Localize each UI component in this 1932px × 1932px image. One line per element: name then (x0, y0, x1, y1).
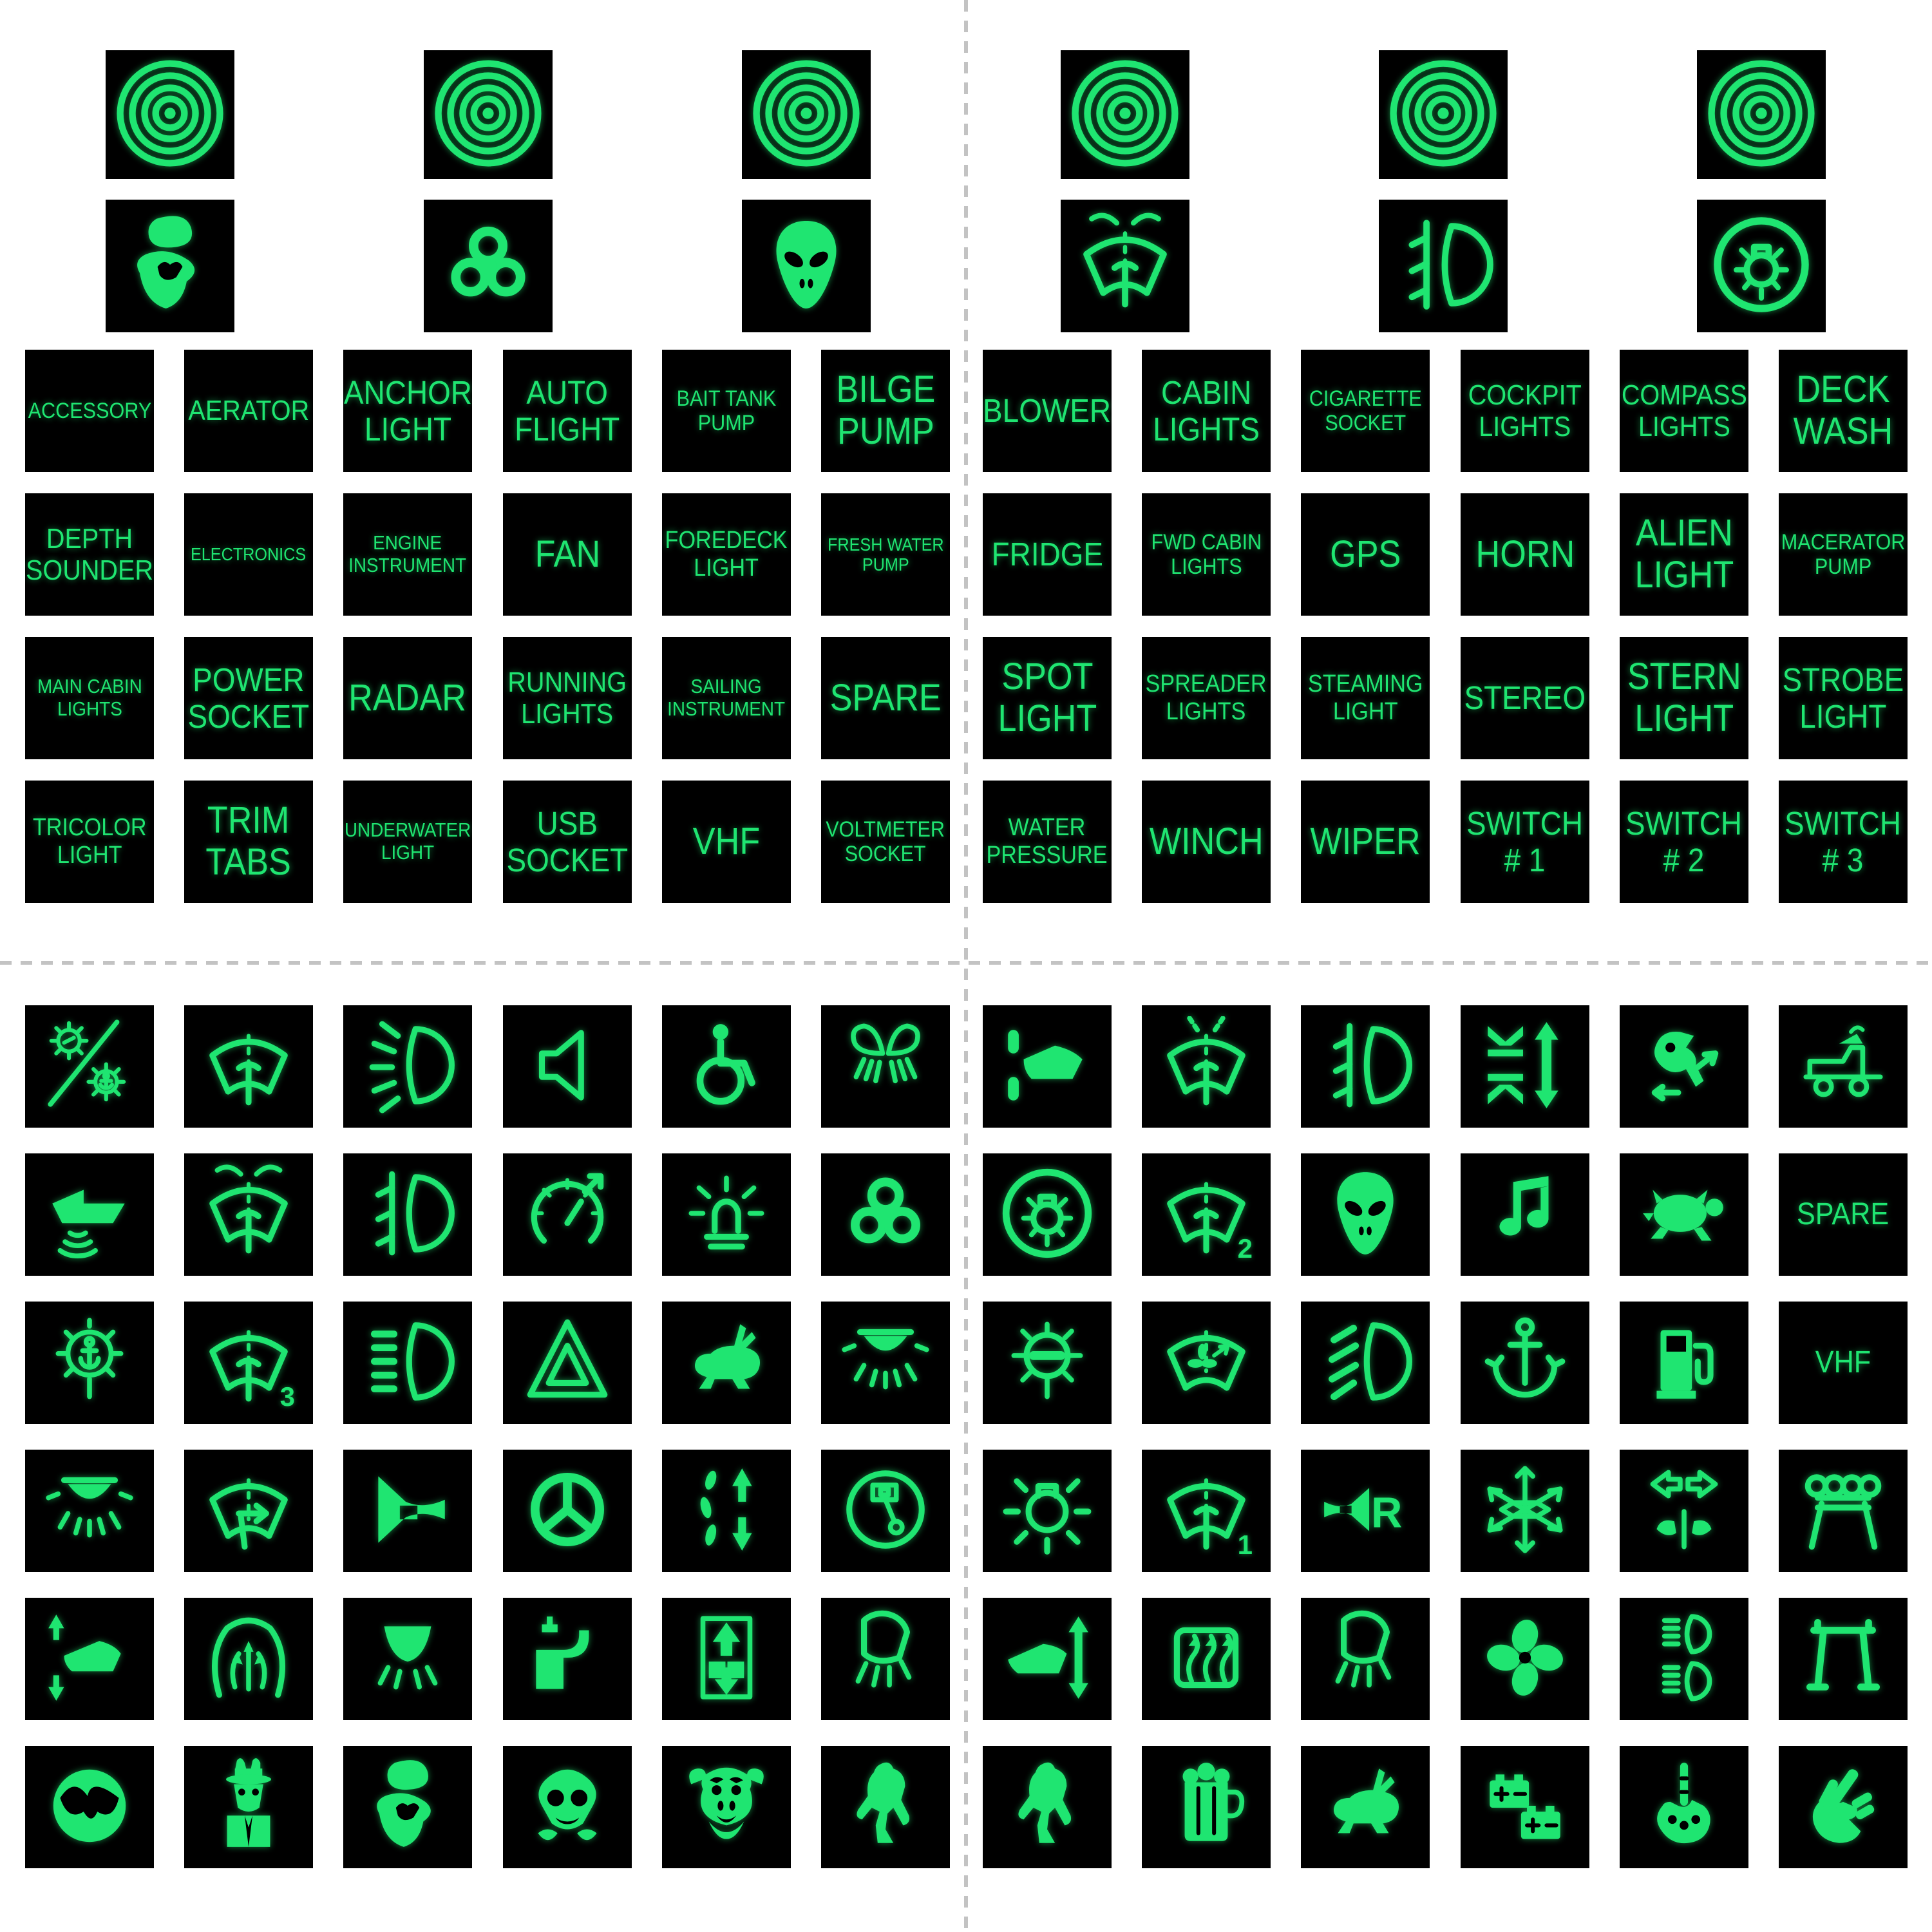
icon-tile-wiper-speed-2-icon: 2 (1142, 1153, 1271, 1276)
tile-label: HORN (1475, 534, 1575, 576)
tile-label: FAN (535, 534, 600, 576)
icon-tile-beer-mugs-icon (1142, 1746, 1271, 1868)
helm-wheel-icon (518, 1461, 616, 1562)
icon-tile-windshield-washer-icon (184, 1153, 313, 1276)
label-tile-auto-flight: AUTOFLIGHT (503, 350, 632, 472)
label-line: ANCHOR (344, 374, 472, 411)
peace-hand-icon (1794, 1757, 1892, 1858)
label-line: FOREDECK (665, 527, 788, 554)
label-tile-wiper: WIPER (1301, 781, 1430, 903)
gas-mask-icon (518, 1757, 616, 1858)
turtle-icon (1635, 1164, 1733, 1265)
wiper-icon (200, 1016, 298, 1117)
boat-trailer-icon (1794, 1016, 1892, 1117)
light-off-slash-icon (41, 1016, 138, 1117)
fog-light-icon-tile (1379, 200, 1508, 332)
label-line: LIGHT (1308, 698, 1423, 726)
registration-target-icon (1388, 58, 1499, 172)
alien-icon-tile (742, 200, 871, 332)
label-line: # 1 (1466, 842, 1583, 878)
tile-label: SAILINGINSTRUMENT (668, 676, 786, 720)
dome-light-icon (837, 1312, 934, 1414)
icon-tile-fog-light-icon (1301, 1005, 1430, 1128)
label-line: SOUNDER (26, 554, 153, 586)
label-line: SOCKET (507, 842, 629, 878)
icon-tile-bait-lift-icon (662, 1450, 791, 1572)
grumpy-face-icon-tile (106, 200, 234, 332)
bigfoot-icon (998, 1757, 1096, 1858)
icon-tile-anchor-icon (1461, 1302, 1589, 1424)
label-line: LIGHT (998, 698, 1097, 740)
label-tile-radar: RADAR (343, 637, 472, 759)
label-tile-compass-lights: COMPASSLIGHTS (1620, 350, 1748, 472)
label-line: SOCKET (1309, 411, 1421, 435)
tile-label: FRIDGE (991, 536, 1103, 573)
label-tile-bait-tank-pump: BAIT TANKPUMP (662, 350, 791, 472)
tile-label: COMPASSLIGHTS (1621, 379, 1747, 443)
icon-tile-wiper-vent-icon (1142, 1302, 1271, 1424)
icon-tile-boat-lift-icon (983, 1005, 1112, 1128)
label-line: # 2 (1625, 842, 1742, 878)
grumpy-face-icon (118, 213, 222, 320)
label-line: SAILING (668, 676, 786, 698)
trim-tab-icon (998, 1609, 1096, 1710)
label-line: STEREO (1464, 679, 1586, 716)
label-line: LIGHTS (1153, 411, 1260, 448)
tile-label: ELECTRONICS (191, 544, 306, 564)
icon-tile-boat-trim-icon (25, 1598, 154, 1720)
tile-label: COCKPITLIGHTS (1468, 379, 1582, 443)
tile-label: MACERATORPUMP (1781, 530, 1906, 579)
label-tile-spreader-lights: SPREADERLIGHTS (1142, 637, 1271, 759)
icon-tile-light-off-slash-icon (25, 1005, 154, 1128)
icon-tile-propeller-icon (1461, 1598, 1589, 1720)
tile-label: RADAR (349, 677, 467, 719)
registration-target-icon-tile (1061, 50, 1189, 179)
label-tile-trim-tabs: TRIMTABS (184, 781, 313, 903)
cabin-light-icon (998, 1461, 1096, 1562)
label-tile-fwd-cabin-lights: FWD CABINLIGHTS (1142, 493, 1271, 616)
water-tap-icon (518, 1609, 616, 1710)
masthead-light-icon (998, 1312, 1096, 1414)
label-tile-spare-label: SPARE (1779, 1153, 1908, 1276)
label-line: DEPTH (26, 523, 153, 554)
label-line: SWITCH (1625, 805, 1742, 842)
engine-piston-icon (837, 1461, 934, 1562)
tile-label: SPOTLIGHT (998, 656, 1097, 740)
label-tile-usb-socket: USBSOCKET (503, 781, 632, 903)
label-tile-accessory: ACCESSORY (25, 350, 154, 472)
label-tile-spare: SPARE (821, 637, 950, 759)
label-line: FRESH WATER (828, 535, 944, 554)
label-tile-deck-wash: DECKWASH (1779, 350, 1908, 472)
dual-beam-icon (1635, 1609, 1733, 1710)
label-line: ACCESSORY (28, 399, 151, 423)
mittens-icon (837, 1016, 934, 1117)
horizontal-cut-line (0, 961, 1932, 965)
tile-label: BILGEPUMP (836, 369, 935, 453)
propeller-icon (1476, 1609, 1574, 1710)
label-line: LIGHTS (1151, 554, 1262, 579)
label-line: VHF (693, 821, 760, 863)
label-tile-vhf: VHF (662, 781, 791, 903)
icon-tile-washer-spray-icon (1142, 1005, 1271, 1128)
label-tile-horn: HORN (1461, 493, 1589, 616)
swim-platform-icon (1794, 1609, 1892, 1710)
biohazard-icon (837, 1164, 934, 1265)
tile-label: VHF (1815, 1345, 1871, 1380)
icon-tile-dome-light-icon (25, 1450, 154, 1572)
label-tile-fridge: FRIDGE (983, 493, 1112, 616)
running-rabbit-icon (1316, 1757, 1414, 1858)
label-tile-stereo: STEREO (1461, 637, 1589, 759)
label-tile-blower: BLOWER (983, 350, 1112, 472)
label-line: PUMP (836, 411, 935, 453)
label-tile-switch-1: SWITCH# 1 (1461, 781, 1589, 903)
dome-light-icon (41, 1461, 138, 1562)
icon-tile-dome-light-icon (821, 1302, 950, 1424)
fog-light-icon (359, 1164, 457, 1265)
icon-tile-helm-wheel-icon (503, 1450, 632, 1572)
icon-tile-owl-icon (25, 1746, 154, 1868)
tile-label: BAIT TANKPUMP (677, 386, 777, 435)
icon-tile-cabin-light-icon (983, 1450, 1112, 1572)
label-line: COMPASS (1621, 379, 1747, 411)
monkey-icon (677, 1757, 775, 1858)
label-line: ELECTRONICS (191, 544, 306, 564)
icon-tile-wiper-icon (184, 1005, 313, 1128)
label-line: TABS (206, 842, 291, 884)
deck-light-icon (837, 1609, 934, 1710)
outboard-tilt-icon (1635, 1016, 1733, 1117)
icon-tile-water-tap-icon (503, 1598, 632, 1720)
tile-label: GPS (1330, 534, 1401, 576)
label-line: LIGHT (345, 842, 471, 864)
label-line: SOCKET (826, 842, 945, 866)
tile-label: TRICOLORLIGHT (33, 814, 147, 869)
label-tile-strobe-light: STROBELIGHT (1779, 637, 1908, 759)
label-line: WASH (1794, 411, 1893, 453)
tile-label: ALIENLIGHT (1634, 513, 1734, 596)
wiper-speed-number: 3 (280, 1381, 295, 1412)
tile-label: MAIN CABINLIGHTS (37, 676, 142, 720)
icon-tile-mittens-icon (821, 1005, 950, 1128)
tile-label: WIPER (1310, 821, 1420, 863)
label-line: SPARE (829, 677, 941, 719)
label-tile-switch-2: SWITCH# 2 (1620, 781, 1748, 903)
tile-label: RUNNINGLIGHTS (508, 667, 627, 730)
label-line: UNDERWATER (345, 819, 471, 842)
label-line: FWD CABIN (1151, 530, 1262, 554)
alien-icon (754, 213, 858, 320)
tile-label: SPARE (829, 677, 941, 719)
label-line: GPS (1330, 534, 1401, 576)
tile-label: VOLTMETERSOCKET (826, 817, 945, 866)
tile-label: FWD CABINLIGHTS (1151, 530, 1262, 579)
label-tile-cigarette-socket: CIGARETTESOCKET (1301, 350, 1430, 472)
registration-target-icon-tile (424, 50, 553, 179)
icon-tile-peace-hand-icon (1779, 1746, 1908, 1868)
windshield-defrost-icon (200, 1609, 298, 1710)
hazard-triangle-icon (518, 1312, 616, 1414)
icon-tile-headlight-rays-icon (343, 1005, 472, 1128)
icon-tile-headlight-beam-icon (1301, 1302, 1430, 1424)
tile-label: STEAMINGLIGHT (1308, 670, 1423, 725)
label-tile-power-socket: POWERSOCKET (184, 637, 313, 759)
label-tile-foredeck-light: FOREDECKLIGHT (662, 493, 791, 616)
wiper-vent-icon (1157, 1312, 1255, 1414)
label-line: SPREADER (1146, 670, 1267, 698)
label-tile-voltmeter-socket: VOLTMETERSOCKET (821, 781, 950, 903)
hoist-icon (677, 1609, 775, 1710)
icon-tile-rod-holder-icon (1779, 1450, 1908, 1572)
skeleton-finger-icon (1635, 1757, 1733, 1858)
tile-label: ACCESSORY (28, 399, 151, 423)
icon-tile-trim-tab-icon (983, 1598, 1112, 1720)
foredeck-light-icon (1316, 1609, 1414, 1710)
label-line: SOCKET (188, 698, 310, 735)
tile-label: CIGARETTESOCKET (1309, 386, 1421, 435)
horn-icon (359, 1461, 457, 1562)
registration-target-icon (1070, 58, 1180, 172)
icon-tile-rabbit-icon (662, 1302, 791, 1424)
icon-tile-engine-piston-icon (821, 1450, 950, 1572)
label-line: BILGE (836, 369, 935, 411)
tile-label: BLOWER (983, 392, 1112, 429)
icon-tile-biohazard-icon (821, 1153, 950, 1276)
registration-target-icon-tile (106, 50, 234, 179)
label-line: FRIDGE (991, 536, 1103, 573)
icon-tile-running-rabbit-icon (1301, 1746, 1430, 1868)
icon-tile-monkey-icon (662, 1746, 791, 1868)
icon-tile-masthead-light-icon (983, 1302, 1112, 1424)
label-line: TRIM (206, 800, 291, 842)
tile-label: UNDERWATERLIGHT (345, 819, 471, 864)
label-tile-bilge-pump: BILGEPUMP (821, 350, 950, 472)
icon-tile-detective-icon (184, 1746, 313, 1868)
headlight-rays-icon (359, 1016, 457, 1117)
tile-label: VHF (693, 821, 760, 863)
tile-label: POWERSOCKET (188, 661, 310, 735)
windshield-washer-icon (200, 1164, 298, 1265)
tile-label: ENGINEINSTRUMENT (349, 532, 467, 576)
battery-icon (1476, 1757, 1574, 1858)
label-line: SPARE (1797, 1197, 1889, 1232)
label-line: FLIGHT (515, 411, 620, 448)
wiper-speed-number: 1 (1238, 1529, 1253, 1560)
label-line: SWITCH (1785, 805, 1901, 842)
label-line: PUMP (828, 554, 944, 574)
icon-tile-reverse-horn-icon (1301, 1450, 1430, 1572)
boat-trim-icon (41, 1609, 138, 1710)
label-tile-main-cabin-lights: MAIN CABINLIGHTS (25, 637, 154, 759)
tile-label: FOREDECKLIGHT (665, 527, 788, 582)
anchor-light-icon (41, 1312, 138, 1414)
label-tile-fan: FAN (503, 493, 632, 616)
icon-tile-headlight-dashes-icon (343, 1302, 472, 1424)
tile-label: STEREO (1464, 679, 1586, 716)
label-line: RUNNING (508, 667, 627, 698)
label-line: LIGHTS (1468, 411, 1582, 442)
icon-tile-battery-icon (1461, 1746, 1589, 1868)
label-tile-fresh-water-pump: FRESH WATERPUMP (821, 493, 950, 616)
anchor-icon (1476, 1312, 1574, 1414)
tile-label: DEPTHSOUNDER (26, 523, 153, 587)
wiper-speed-number: 2 (1238, 1233, 1253, 1264)
icon-tile-boat-trailer-icon (1779, 1005, 1908, 1128)
icon-tile-grumpy-face-icon (343, 1746, 472, 1868)
navigation-light-icon (998, 1164, 1096, 1265)
label-line: BLOWER (983, 392, 1112, 429)
tile-label: STERNLIGHT (1627, 656, 1741, 740)
icon-tile-bigfoot-icon (983, 1746, 1112, 1868)
label-line: STROBE (1783, 661, 1904, 698)
label-line: BAIT TANK (677, 386, 777, 411)
label-line: STERN (1627, 656, 1741, 698)
icon-tile-nav-side-lights-icon (1620, 1450, 1748, 1572)
music-note-icon (1476, 1164, 1574, 1265)
rabbit-icon (677, 1312, 775, 1414)
tile-label: WATERPRESSURE (987, 814, 1108, 869)
icon-tile-wiper-arrow-icon (184, 1450, 313, 1572)
icon-tile-speedometer-icon (503, 1153, 632, 1276)
headlight-beam-icon (1316, 1312, 1414, 1414)
label-line: AERATOR (188, 395, 309, 426)
label-line: LIGHT (1783, 698, 1904, 735)
icon-tile-wiper-speed-1-icon: 1 (1142, 1450, 1271, 1572)
icon-tile-hazard-triangle-icon (503, 1302, 632, 1424)
icon-tile-wiper-speed-3-icon: 3 (184, 1302, 313, 1424)
biohazard-icon-tile (424, 200, 553, 332)
label-tile-macerator-pump: MACERATORPUMP (1779, 493, 1908, 616)
icon-tile-alien-icon (1301, 1153, 1430, 1276)
icon-tile-fuel-pump-icon (1620, 1302, 1748, 1424)
label-line: DECK (1794, 369, 1893, 411)
icon-tile-turtle-icon (1620, 1153, 1748, 1276)
speaker-icon (518, 1016, 616, 1117)
icon-tile-windshield-defrost-icon (184, 1598, 313, 1720)
label-tile-running-lights: RUNNINGLIGHTS (503, 637, 632, 759)
icon-tile-horn-icon (343, 1450, 472, 1572)
tile-label: ANCHORLIGHT (344, 374, 472, 448)
label-tile-depth-sounder: DEPTHSOUNDER (25, 493, 154, 616)
tile-label: CABINLIGHTS (1153, 374, 1260, 448)
tile-label: WINCH (1150, 821, 1264, 863)
tile-label: DECKWASH (1794, 369, 1893, 453)
label-line: ENGINE (349, 532, 467, 554)
registration-target-icon (1706, 58, 1817, 172)
icon-tile-spreader-light-icon (343, 1598, 472, 1720)
label-line: INSTRUMENT (349, 554, 467, 577)
tile-label: AERATOR (188, 395, 309, 426)
fuel-pump-icon (1635, 1312, 1733, 1414)
label-line: PUMP (677, 411, 777, 435)
grumpy-face-icon (359, 1757, 457, 1858)
label-line: LIGHT (1627, 698, 1741, 740)
label-line: WINCH (1150, 821, 1264, 863)
label-line: CABIN (1153, 374, 1260, 411)
icon-tile-beacon-light-icon (662, 1153, 791, 1276)
navigation-light-icon (1709, 213, 1814, 320)
label-line: INSTRUMENT (668, 698, 786, 721)
nav-side-lights-icon (1635, 1461, 1733, 1562)
icon-tile-dual-beam-icon (1620, 1598, 1748, 1720)
swamp-creature-icon (837, 1757, 934, 1858)
label-line: STEAMING (1308, 670, 1423, 698)
depth-sounder-icon (41, 1164, 138, 1265)
label-line: TRICOLOR (33, 814, 147, 842)
registration-target-icon-tile (742, 50, 871, 179)
owl-icon (41, 1757, 138, 1858)
tile-label: AUTOFLIGHT (515, 374, 620, 448)
label-line: MACERATOR (1781, 530, 1906, 554)
label-tile-gps: GPS (1301, 493, 1430, 616)
label-line: PUMP (1781, 554, 1906, 579)
label-line: PRESSURE (987, 842, 1108, 869)
icon-tile-anchor-light-icon (25, 1302, 154, 1424)
spreader-light-icon (359, 1609, 457, 1710)
label-line: CIGARETTE (1309, 386, 1421, 411)
icon-tile-gas-mask-icon (503, 1746, 632, 1868)
label-line: ALIEN (1634, 513, 1734, 554)
label-line: LIGHT (33, 842, 147, 869)
icon-tile-depth-sounder-icon (25, 1153, 154, 1276)
label-line: MAIN CABIN (37, 676, 142, 698)
label-tile-aerator: AERATOR (184, 350, 313, 472)
icon-tile-swim-platform-icon (1779, 1598, 1908, 1720)
label-line: FAN (535, 534, 600, 576)
label-line: USB (507, 805, 629, 842)
icon-tile-navigation-light-icon (983, 1153, 1112, 1276)
fog-light-icon (1391, 213, 1495, 320)
label-line: HORN (1475, 534, 1575, 576)
icon-tile-rear-defrost-icon (1142, 1598, 1271, 1720)
label-tile-steaming-light: STEAMINGLIGHT (1301, 637, 1430, 759)
fog-light-icon (1316, 1016, 1414, 1117)
label-line: LIGHTS (37, 698, 142, 721)
label-line: LIGHT (665, 554, 788, 582)
label-tile-sailing-instrument: SAILINGINSTRUMENT (662, 637, 791, 759)
icon-tile-snowflake-icon (1461, 1450, 1589, 1572)
snowflake-icon (1476, 1461, 1574, 1562)
label-line: # 3 (1785, 842, 1901, 878)
icon-tile-windlass-icon (1461, 1005, 1589, 1128)
biohazard-icon (436, 213, 540, 320)
windshield-washer-icon-tile (1061, 200, 1189, 332)
tile-label: USBSOCKET (507, 805, 629, 878)
icon-tile-speaker-icon (503, 1005, 632, 1128)
beacon-light-icon (677, 1164, 775, 1265)
rear-defrost-icon (1157, 1609, 1255, 1710)
icon-tile-swamp-creature-icon (821, 1746, 950, 1868)
icon-tile-music-note-icon (1461, 1153, 1589, 1276)
label-tile-winch: WINCH (1142, 781, 1271, 903)
registration-target-icon (433, 58, 544, 172)
tile-label: SWITCH# 3 (1785, 805, 1901, 878)
label-tile-water-pressure: WATERPRESSURE (983, 781, 1112, 903)
beer-mugs-icon (1157, 1757, 1255, 1858)
label-tile-alien-light: ALIENLIGHT (1620, 493, 1748, 616)
registration-target-icon (115, 58, 225, 172)
label-tile-tricolor-light: TRICOLORLIGHT (25, 781, 154, 903)
alien-icon (1316, 1164, 1414, 1265)
label-line: LIGHTS (1621, 411, 1747, 442)
label-tile-cockpit-lights: COCKPITLIGHTS (1461, 350, 1589, 472)
label-tile-stern-light: STERNLIGHT (1620, 637, 1748, 759)
label-tile-switch-3: SWITCH# 3 (1779, 781, 1908, 903)
speedometer-icon (518, 1164, 616, 1265)
icon-tile-wheelchair-icon (662, 1005, 791, 1128)
